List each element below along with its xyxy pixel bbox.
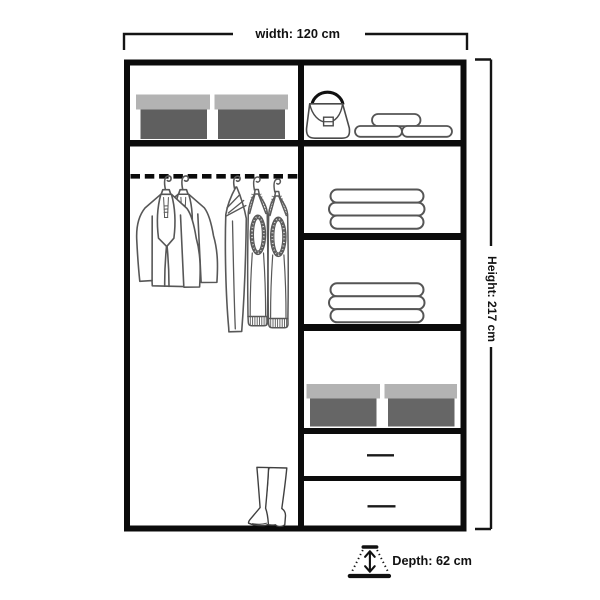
svg-text:Depth: 62 cm: Depth: 62 cm — [392, 554, 472, 568]
svg-text:Height: 217 cm: Height: 217 cm — [485, 256, 499, 342]
svg-text:width: 120 cm: width: 120 cm — [254, 26, 340, 41]
